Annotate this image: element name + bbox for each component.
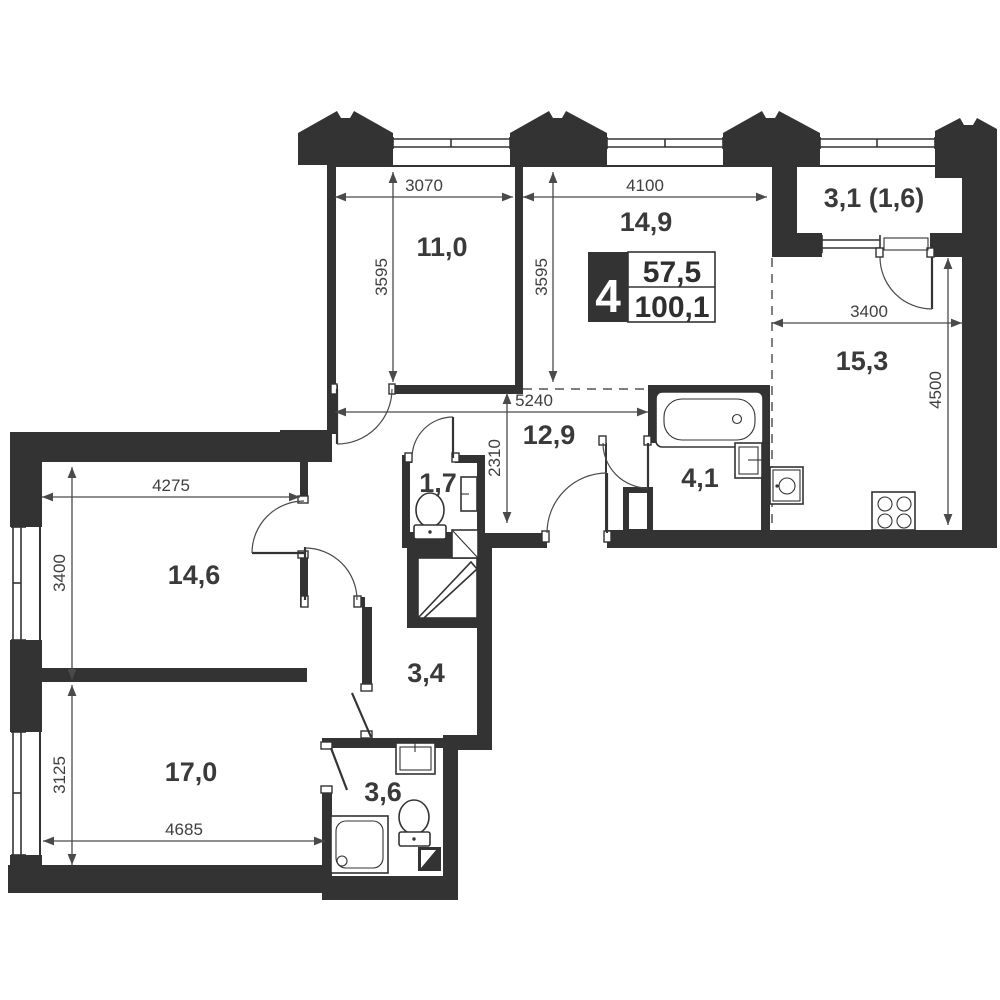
bathroom-sink-icon <box>735 443 764 478</box>
room-area-label: 4,1 <box>681 463 719 493</box>
door-room-17-0 <box>301 547 361 607</box>
room-area-label: 12,9 <box>523 420 576 450</box>
washing-machine-icon <box>770 467 803 504</box>
door-entrance <box>542 473 611 542</box>
dimension-label: 3595 <box>372 258 391 296</box>
dimension-label: 4100 <box>626 176 664 195</box>
window-top-1 <box>393 137 510 149</box>
window-room-17-0 <box>11 732 26 855</box>
window-balcony-top <box>820 137 935 149</box>
dimension-label: 4685 <box>165 820 203 839</box>
door-room-11-0 <box>331 384 395 444</box>
shower-toilet-icon <box>399 800 430 846</box>
dimension-label: 3125 <box>50 756 69 794</box>
window-room-14-6 <box>11 527 26 640</box>
dimension-label: 3595 <box>532 258 551 296</box>
door-room-14-6 <box>252 496 308 558</box>
wc-sink-icon <box>461 477 477 511</box>
fixtures <box>331 392 915 873</box>
room-area-label: 11,0 <box>416 232 467 262</box>
room-area-label: 3,1 (1,6) <box>824 183 925 213</box>
dimension-label: 3400 <box>850 302 888 321</box>
dimension-label: 2310 <box>485 439 504 477</box>
room-area-label: 15,3 <box>836 346 889 376</box>
door-balcony <box>876 238 934 309</box>
apartment-info-badge: 4 57,5 100,1 <box>588 252 715 324</box>
total-area-value: 100,1 <box>634 291 709 324</box>
floor-plan: 3070 4100 3595 3595 3400 4500 5240 2310 … <box>0 0 1000 1000</box>
rooms-count: 4 <box>595 270 621 322</box>
wc-vent-icon <box>452 530 478 558</box>
room-area-label: 3,6 <box>364 777 402 807</box>
facade-pillar <box>935 118 997 178</box>
shower-vent-icon <box>418 847 441 871</box>
door-shower-room <box>321 742 347 793</box>
stove-icon <box>872 492 915 530</box>
shower-sink-icon <box>396 738 435 774</box>
room-area-label: 14,9 <box>620 207 673 237</box>
interior-boundary-lines <box>40 166 962 855</box>
living-area-value: 57,5 <box>643 256 701 289</box>
wardrobe-icon <box>418 558 477 618</box>
dimension-label: 3070 <box>405 176 443 195</box>
door-wc <box>405 417 459 462</box>
wc-toilet-icon <box>414 493 446 539</box>
bathtub-icon <box>656 392 763 447</box>
dimension-label: 3400 <box>50 554 69 592</box>
door-corridor-3-4 <box>352 684 372 738</box>
facade-pillar <box>510 111 607 165</box>
room-area-label: 1,7 <box>419 468 457 498</box>
floor-plan-canvas: 3070 4100 3595 3595 3400 4500 5240 2310 … <box>0 0 1000 1000</box>
room-area-label: 14,6 <box>168 560 221 590</box>
room-area-label: 3,4 <box>407 658 445 688</box>
walls <box>8 111 997 900</box>
shower-tray-icon <box>331 816 388 873</box>
vent-duct-icon <box>623 487 653 535</box>
dimension-label: 5240 <box>515 391 553 410</box>
dimension-label: 4275 <box>152 476 190 495</box>
dimension-label: 4500 <box>926 371 945 409</box>
window-balcony-inner <box>822 235 880 253</box>
facade-pillar <box>723 111 820 165</box>
room-area-label: 17,0 <box>165 757 218 787</box>
window-top-2 <box>607 137 723 149</box>
facade-pillar <box>298 111 393 165</box>
